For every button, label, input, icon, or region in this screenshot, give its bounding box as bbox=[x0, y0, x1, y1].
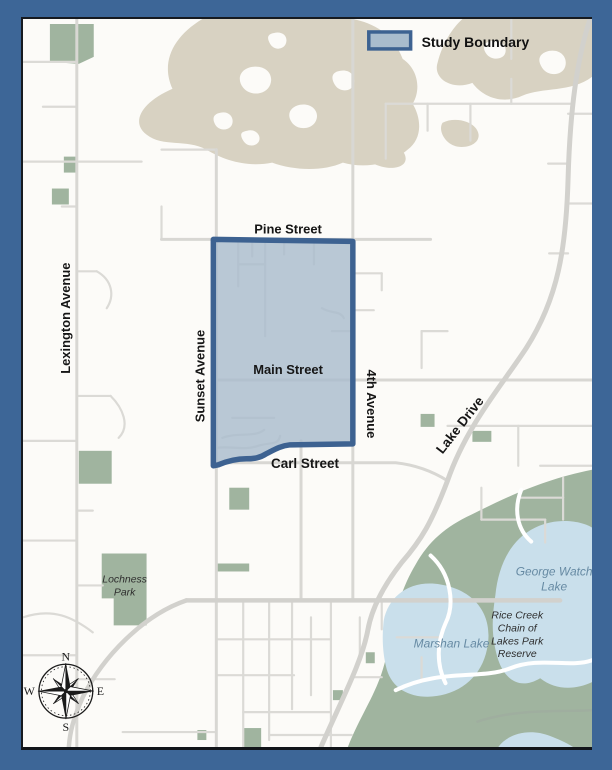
map-page: { "legend": { "label": "Study Boundary" … bbox=[0, 0, 612, 770]
compass-east-label: E bbox=[97, 684, 104, 698]
lochness-park-label-line2: Park bbox=[114, 587, 136, 598]
compass-south-label: S bbox=[63, 720, 70, 734]
rice-creek-label-line3: Lakes Park bbox=[491, 636, 544, 647]
study-boundary-polygon bbox=[213, 239, 353, 465]
rice-creek-label-line4: Reserve bbox=[498, 649, 537, 660]
map-svg: Study Boundary Pine Street Main Street C… bbox=[23, 19, 592, 747]
legend-label: Study Boundary bbox=[422, 34, 530, 50]
pine-street-label: Pine Street bbox=[254, 221, 322, 236]
sunset-avenue-label: Sunset Avenue bbox=[192, 330, 207, 423]
park-patch bbox=[50, 24, 94, 64]
carl-street-label: Carl Street bbox=[271, 456, 339, 471]
compass-north-label: N bbox=[62, 649, 71, 663]
rice-creek-label-line1: Rice Creek bbox=[491, 610, 543, 621]
marshan-lake-label: Marshan Lake bbox=[414, 636, 490, 650]
george-watch-lake-label-line1: George Watch bbox=[516, 564, 592, 578]
legend-swatch bbox=[369, 32, 411, 49]
legend: Study Boundary bbox=[369, 32, 530, 50]
lochness-park-label-line1: Lochness bbox=[102, 574, 148, 585]
lexington-avenue-label: Lexington Avenue bbox=[58, 263, 73, 374]
main-street-label: Main Street bbox=[253, 362, 323, 377]
fourth-avenue-label: 4th Avenue bbox=[364, 370, 379, 439]
compass-west-label: W bbox=[24, 684, 36, 698]
rice-creek-label-line2: Chain of bbox=[498, 623, 538, 634]
george-watch-lake-label-line2: Lake bbox=[541, 579, 567, 593]
map-canvas: Study Boundary Pine Street Main Street C… bbox=[21, 17, 592, 750]
